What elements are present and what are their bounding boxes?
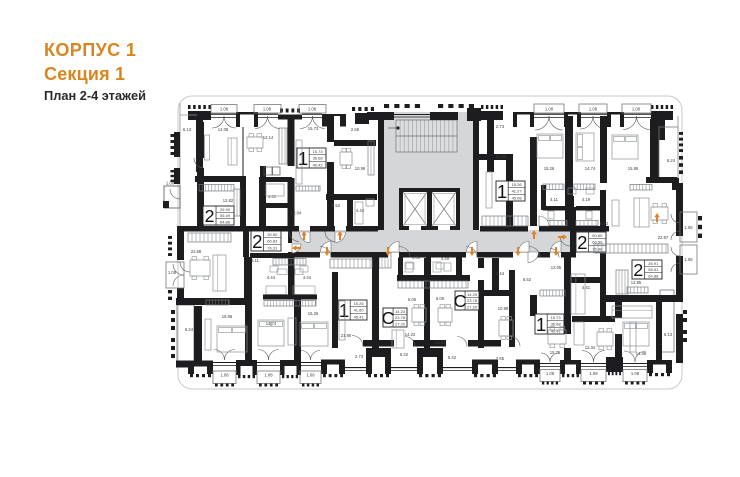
svg-text:15.26: 15.26 <box>308 311 319 316</box>
svg-text:1.08: 1.08 <box>220 373 229 378</box>
svg-text:1.08: 1.08 <box>166 181 175 186</box>
svg-text:12.05: 12.05 <box>551 265 562 270</box>
svg-text:6.13: 6.13 <box>183 127 192 132</box>
svg-text:50.60: 50.60 <box>592 233 603 238</box>
svg-text:36.68: 36.68 <box>551 322 562 327</box>
svg-text:1.08: 1.08 <box>546 371 555 376</box>
svg-text:6.24: 6.24 <box>667 158 676 163</box>
svg-text:5.52: 5.52 <box>523 277 532 282</box>
svg-text:4.44: 4.44 <box>303 275 312 280</box>
svg-text:2: 2 <box>577 232 587 253</box>
svg-text:2: 2 <box>252 231 262 252</box>
svg-text:26.90: 26.90 <box>220 207 231 212</box>
svg-text:14.74: 14.74 <box>585 166 596 171</box>
svg-text:5.06: 5.06 <box>436 296 445 301</box>
svg-text:22.67: 22.67 <box>658 235 669 240</box>
svg-text:12.04: 12.04 <box>291 211 302 216</box>
svg-text:4.11: 4.11 <box>550 197 559 202</box>
svg-text:10.99: 10.99 <box>355 166 366 171</box>
svg-text:4.19: 4.19 <box>582 197 591 202</box>
svg-text:5.42: 5.42 <box>400 352 409 357</box>
svg-text:22.68: 22.68 <box>191 249 202 254</box>
svg-text:1.08: 1.08 <box>264 373 273 378</box>
svg-text:12.82: 12.82 <box>223 198 234 203</box>
svg-text:36.68: 36.68 <box>313 156 324 161</box>
svg-text:6.13: 6.13 <box>664 332 673 337</box>
svg-text:1: 1 <box>497 181 507 202</box>
svg-text:С: С <box>382 308 395 328</box>
svg-text:1.08: 1.08 <box>632 107 641 112</box>
svg-text:14.23: 14.23 <box>435 340 446 345</box>
svg-text:1.08: 1.08 <box>306 373 315 378</box>
svg-text:27.20: 27.20 <box>395 321 406 326</box>
svg-text:2.73: 2.73 <box>355 354 364 359</box>
svg-text:45.41: 45.41 <box>354 314 365 319</box>
svg-text:23.78: 23.78 <box>395 315 406 320</box>
svg-text:14.08: 14.08 <box>218 127 229 132</box>
svg-text:4.44: 4.44 <box>356 208 365 213</box>
svg-text:1.08: 1.08 <box>220 107 229 112</box>
svg-text:Секция 1: Секция 1 <box>44 64 125 84</box>
svg-text:76.31: 76.31 <box>267 245 278 250</box>
svg-text:40.42: 40.42 <box>313 162 324 167</box>
svg-text:10.99: 10.99 <box>498 306 509 311</box>
svg-text:15.86: 15.86 <box>628 166 639 171</box>
svg-text:64.88: 64.88 <box>648 273 659 278</box>
svg-text:14.08: 14.08 <box>636 351 647 356</box>
svg-text:14.23: 14.23 <box>395 309 406 314</box>
svg-text:12.85: 12.85 <box>631 280 642 285</box>
svg-text:1.08: 1.08 <box>589 107 598 112</box>
svg-text:1.08: 1.08 <box>684 225 693 230</box>
svg-text:21.90: 21.90 <box>496 154 507 159</box>
svg-text:14.23: 14.23 <box>405 332 416 337</box>
svg-text:4.44: 4.44 <box>496 271 505 276</box>
svg-text:15.86: 15.86 <box>222 314 233 319</box>
svg-text:55.51: 55.51 <box>648 267 659 272</box>
svg-text:6.24: 6.24 <box>185 327 194 332</box>
svg-text:14.25: 14.25 <box>467 292 478 297</box>
svg-text:1: 1 <box>298 148 308 169</box>
svg-text:2.66: 2.66 <box>351 127 360 132</box>
svg-text:1.08: 1.08 <box>263 107 272 112</box>
svg-text:55.49: 55.49 <box>220 213 231 218</box>
svg-text:15.26: 15.26 <box>512 182 523 187</box>
svg-text:64.86: 64.86 <box>220 219 231 224</box>
svg-text:1.08: 1.08 <box>168 270 177 275</box>
svg-text:9.12: 9.12 <box>600 221 609 226</box>
svg-text:15.75: 15.75 <box>550 350 561 355</box>
svg-text:1.08: 1.08 <box>589 371 598 376</box>
svg-text:1: 1 <box>536 314 546 335</box>
svg-text:1.08: 1.08 <box>684 257 693 262</box>
svg-text:15.26: 15.26 <box>354 301 365 306</box>
svg-text:21.90: 21.90 <box>341 333 352 338</box>
svg-text:5.52: 5.52 <box>332 203 341 208</box>
svg-text:41.27: 41.27 <box>512 189 523 194</box>
svg-text:4.44: 4.44 <box>267 275 276 280</box>
svg-text:15.26: 15.26 <box>544 166 555 171</box>
svg-text:15.73: 15.73 <box>308 126 319 131</box>
svg-text:12.14: 12.14 <box>263 135 274 140</box>
svg-text:4.41: 4.41 <box>268 194 277 199</box>
svg-text:26.91: 26.91 <box>648 261 659 266</box>
svg-text:2: 2 <box>205 206 215 226</box>
svg-text:1.08: 1.08 <box>545 107 554 112</box>
svg-text:45.08: 45.08 <box>512 195 523 200</box>
svg-text:1.08: 1.08 <box>631 371 640 376</box>
svg-text:27.20: 27.20 <box>467 304 478 309</box>
svg-text:4.49: 4.49 <box>412 255 421 260</box>
svg-text:15.73: 15.73 <box>313 149 324 154</box>
svg-text:12.34: 12.34 <box>585 345 596 350</box>
svg-text:2.73: 2.73 <box>496 124 505 129</box>
svg-text:66.83: 66.83 <box>267 239 278 244</box>
svg-text:15.73: 15.73 <box>551 315 562 320</box>
svg-text:4.49: 4.49 <box>441 256 450 261</box>
svg-text:9.11: 9.11 <box>251 258 260 263</box>
svg-text:С: С <box>454 291 467 311</box>
svg-text:2.65: 2.65 <box>496 356 505 361</box>
svg-text:30.60: 30.60 <box>267 232 278 237</box>
svg-text:2: 2 <box>633 260 643 280</box>
svg-text:1.08: 1.08 <box>308 107 317 112</box>
svg-text:23.78: 23.78 <box>467 298 478 303</box>
svg-text:41.60: 41.60 <box>354 308 365 313</box>
svg-text:5.42: 5.42 <box>448 355 457 360</box>
svg-text:План 2-4 этажей: План 2-4 этажей <box>44 88 146 103</box>
svg-text:1: 1 <box>339 300 349 321</box>
svg-text:4.41: 4.41 <box>582 285 591 290</box>
svg-text:5.06: 5.06 <box>408 297 417 302</box>
svg-text:КОРПУС 1: КОРПУС 1 <box>44 40 136 60</box>
